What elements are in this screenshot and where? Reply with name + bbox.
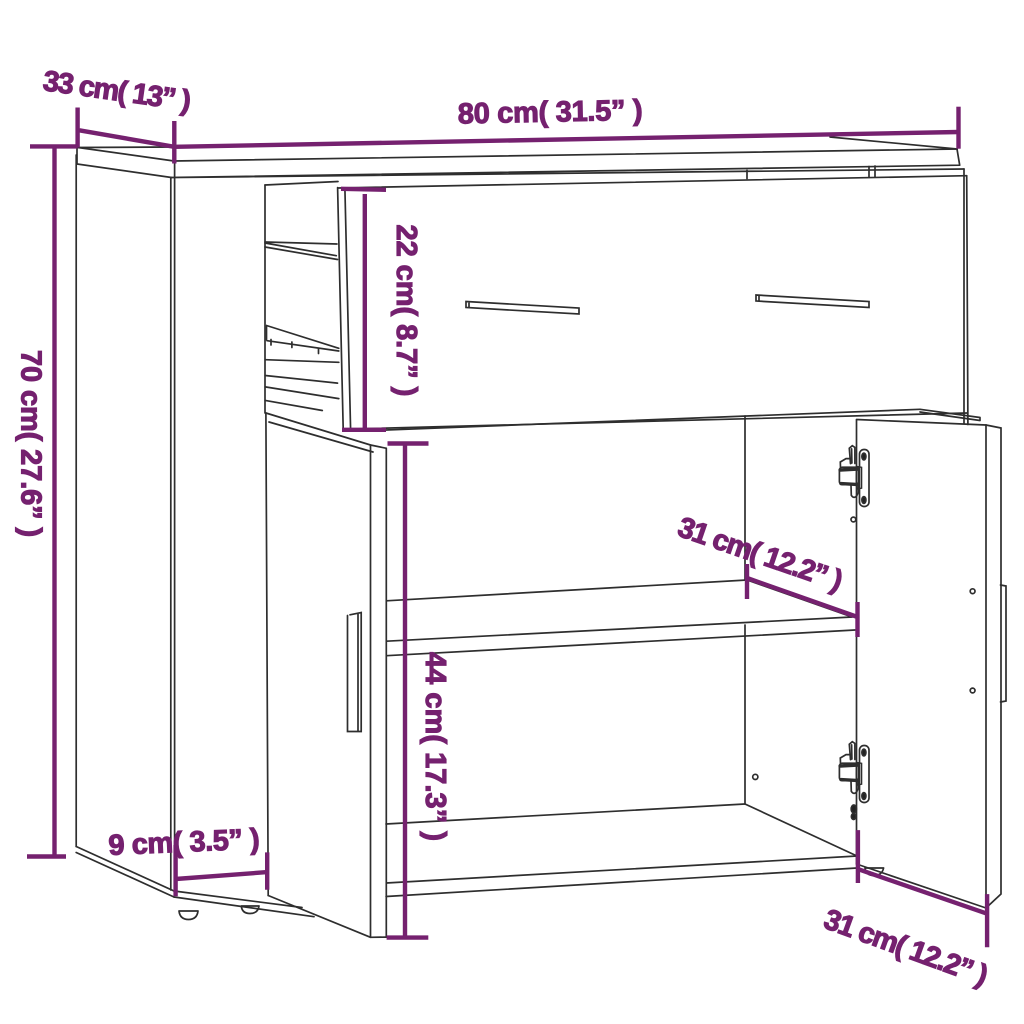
- svg-text:70 cm( 27.6” ): 70 cm( 27.6” ): [15, 350, 47, 537]
- svg-text:22 cm( 8.7” ): 22 cm( 8.7” ): [390, 225, 422, 397]
- svg-text:31 cm( 12.2” ): 31 cm( 12.2” ): [820, 904, 992, 993]
- svg-text:80 cm( 31.5” ): 80 cm( 31.5” ): [457, 95, 642, 131]
- svg-text:33 cm( 13” ): 33 cm( 13” ): [41, 65, 192, 117]
- svg-text:44 cm( 17.3” ): 44 cm( 17.3” ): [419, 652, 451, 841]
- svg-text:9 cm( 3.5” ): 9 cm( 3.5” ): [108, 823, 260, 862]
